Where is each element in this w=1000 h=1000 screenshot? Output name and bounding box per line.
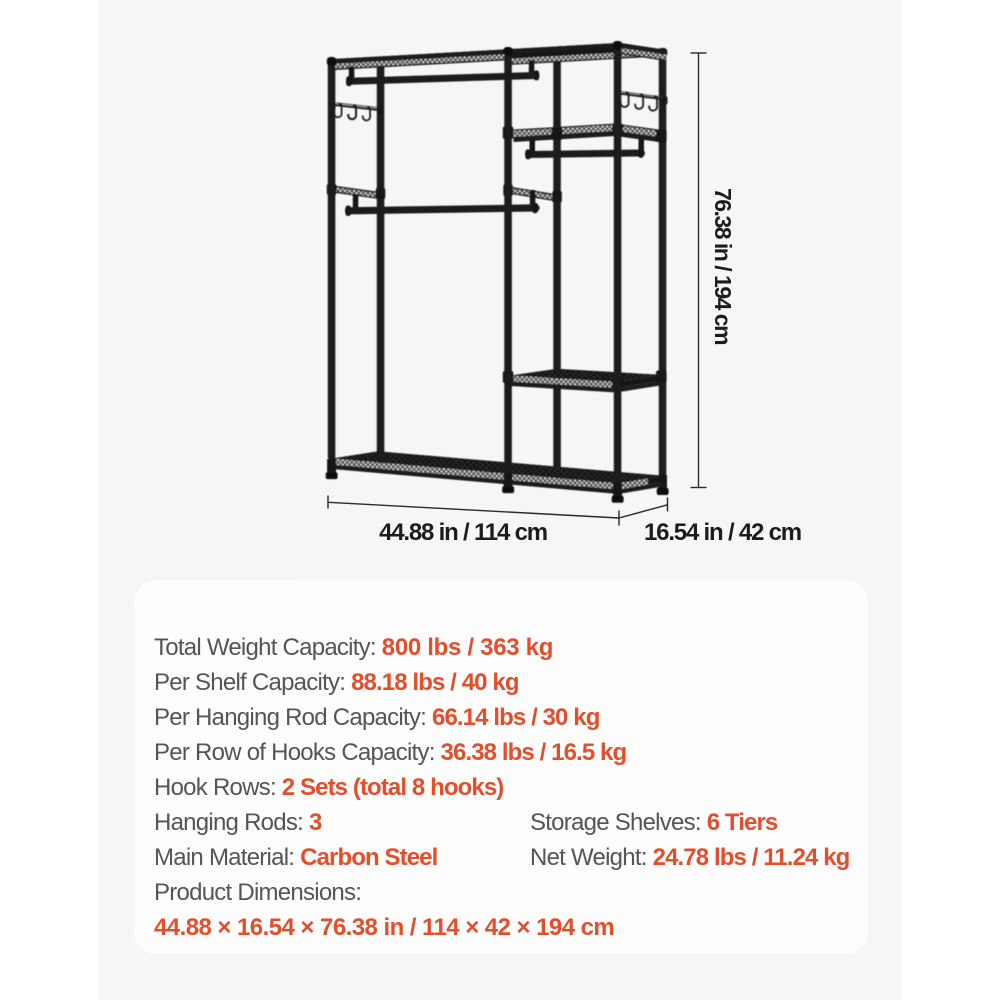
svg-text:16.54 in / 42 cm: 16.54 in / 42 cm xyxy=(644,519,801,546)
svg-text:76.38 in / 194 cm: 76.38 in / 194 cm xyxy=(710,188,736,345)
svg-text:44.88 in / 114 cm: 44.88 in / 114 cm xyxy=(379,519,547,546)
